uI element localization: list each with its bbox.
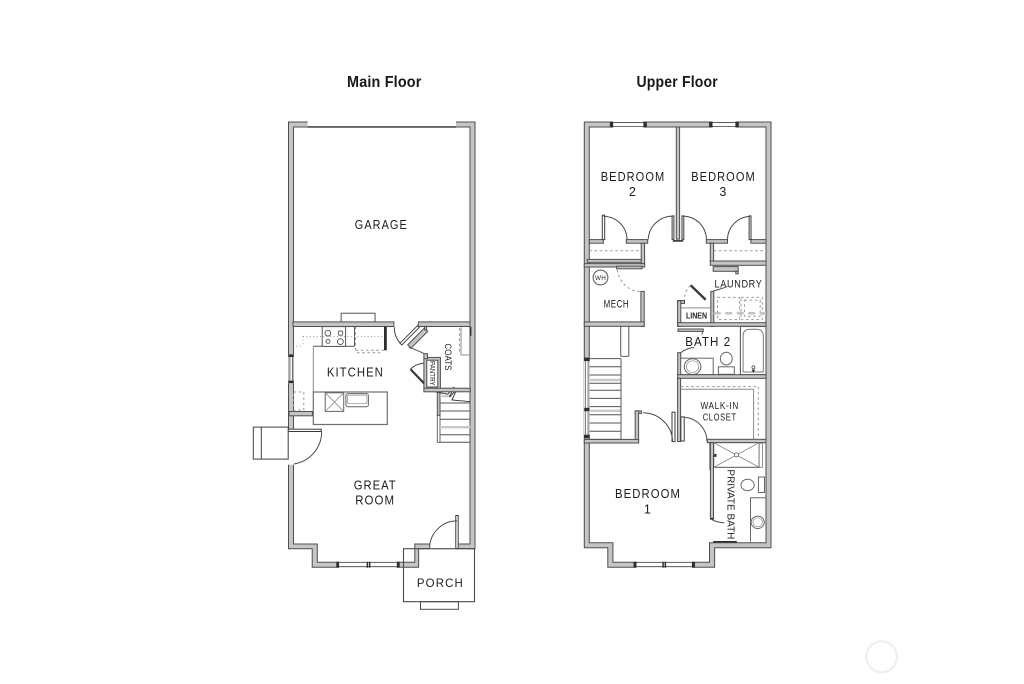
- svg-text:LINEN: LINEN: [686, 311, 707, 320]
- svg-text:WH: WH: [595, 275, 606, 282]
- svg-text:BATH 2: BATH 2: [685, 334, 731, 349]
- svg-text:Main Floor: Main Floor: [347, 74, 422, 91]
- svg-text:GREAT: GREAT: [354, 477, 397, 492]
- svg-text:1: 1: [644, 503, 652, 517]
- svg-text:BEDROOM: BEDROOM: [601, 170, 666, 184]
- svg-text:CLOSET: CLOSET: [703, 413, 737, 424]
- svg-text:ROOM: ROOM: [355, 492, 395, 507]
- svg-text:GARAGE: GARAGE: [355, 218, 408, 232]
- svg-text:PRIVATE BATH: PRIVATE BATH: [724, 469, 735, 539]
- svg-text:MECH: MECH: [604, 299, 630, 311]
- svg-text:KITCHEN: KITCHEN: [327, 364, 384, 379]
- svg-text:BEDROOM: BEDROOM: [615, 487, 681, 501]
- svg-text:BEDROOM: BEDROOM: [691, 170, 756, 184]
- svg-text:3: 3: [719, 185, 727, 199]
- svg-text:2: 2: [629, 185, 637, 199]
- svg-text:PANTRY: PANTRY: [428, 361, 435, 386]
- svg-text:PORCH: PORCH: [417, 576, 464, 590]
- svg-text:Upper Floor: Upper Floor: [636, 74, 718, 91]
- svg-text:COATS: COATS: [442, 344, 453, 371]
- svg-text:WALK-IN: WALK-IN: [700, 401, 739, 412]
